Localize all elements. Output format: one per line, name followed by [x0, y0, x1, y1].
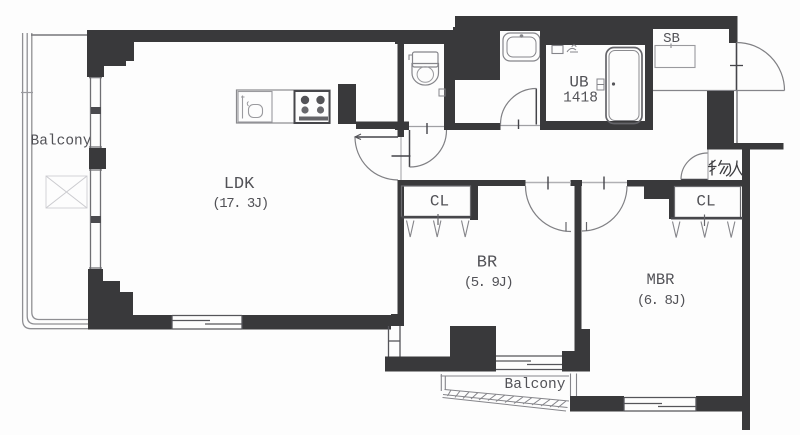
- svg-text:1418: 1418: [563, 91, 598, 107]
- svg-text:(5. 9J): (5. 9J): [464, 275, 512, 291]
- svg-text:Balcony: Balcony: [505, 377, 566, 393]
- svg-text:CL: CL: [430, 193, 449, 211]
- svg-text:UB: UB: [569, 74, 588, 92]
- svg-text:LDK: LDK: [224, 175, 255, 194]
- svg-text:(17. 3J): (17. 3J): [212, 196, 267, 212]
- svg-text:MBR: MBR: [647, 271, 675, 289]
- svg-text:BR: BR: [477, 254, 497, 273]
- svg-text:(6. 8J): (6. 8J): [637, 293, 685, 309]
- svg-text:CL: CL: [696, 193, 715, 211]
- svg-text:Balcony: Balcony: [31, 134, 92, 150]
